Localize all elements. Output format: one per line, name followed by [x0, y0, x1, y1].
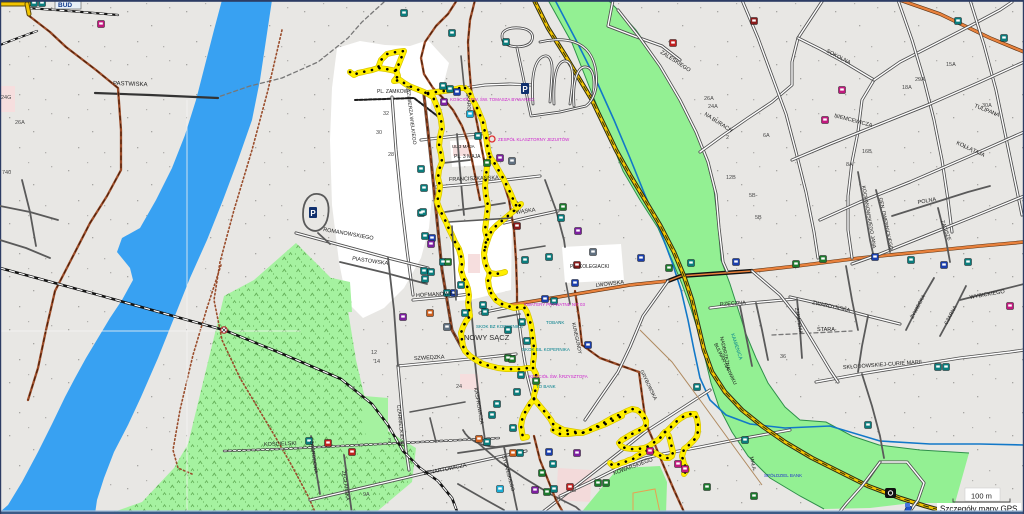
- svg-text:9A: 9A: [363, 492, 370, 498]
- svg-text:29A: 29A: [915, 77, 925, 83]
- svg-text:TO BANK: TO BANK: [536, 384, 556, 389]
- svg-text:BUD: BUD: [58, 2, 72, 9]
- svg-text:PASTWISKA: PASTWISKA: [113, 81, 148, 88]
- svg-text:KWATERY PRYWATNE NIT 03: KWATERY PRYWATNE NIT 03: [524, 302, 585, 307]
- svg-text:6A: 6A: [763, 133, 770, 139]
- svg-text:30: 30: [376, 130, 382, 136]
- svg-text:8A: 8A: [846, 162, 853, 168]
- svg-text:NOWY SĄCZ: NOWY SĄCZ: [464, 333, 510, 342]
- svg-text:3: 3: [388, 438, 391, 444]
- svg-text:36: 36: [780, 354, 786, 360]
- svg-text:SKOK BZ KOPERNIKA: SKOK BZ KOPERNIKA: [476, 324, 523, 329]
- svg-text:24: 24: [456, 384, 462, 390]
- svg-text:15A: 15A: [946, 62, 956, 68]
- svg-text:33: 33: [570, 488, 576, 494]
- svg-text:26A: 26A: [704, 96, 714, 102]
- svg-text:PL. KOLEGIACKI: PL. KOLEGIACKI: [570, 264, 609, 270]
- svg-text:2: 2: [726, 135, 729, 141]
- svg-text:P: P: [310, 209, 316, 218]
- svg-text:24G: 24G: [1, 95, 11, 101]
- svg-text:SKOK BIL KOPERNIKA: SKOK BIL KOPERNIKA: [522, 347, 570, 352]
- svg-text:STARA: STARA: [817, 327, 835, 333]
- svg-text:100 m: 100 m: [971, 492, 992, 501]
- svg-text:18A: 18A: [902, 85, 912, 91]
- svg-text:SPÓŁDZIEL BANK: SPÓŁDZIEL BANK: [764, 472, 802, 478]
- svg-text:12: 12: [371, 350, 377, 356]
- svg-text:12B: 12B: [726, 175, 736, 181]
- svg-text:28: 28: [388, 152, 394, 158]
- svg-text:UL 3 MAJA: UL 3 MAJA: [452, 144, 475, 149]
- svg-text:PL. 3 MAJA: PL. 3 MAJA: [454, 154, 481, 160]
- svg-text:5B: 5B: [755, 215, 762, 221]
- svg-text:P: P: [522, 85, 528, 94]
- svg-text:26A: 26A: [15, 120, 25, 126]
- svg-text:KOŚCIÓŁ ŚW. KRZYSZTOFA: KOŚCIÓŁ ŚW. KRZYSZTOFA: [529, 374, 588, 379]
- svg-text:5B-: 5B-: [749, 193, 758, 199]
- svg-text:16B: 16B: [862, 149, 872, 155]
- svg-text:ZESPÓŁ KLASZTORNY JEZUITÓW: ZESPÓŁ KLASZTORNY JEZUITÓW: [498, 137, 570, 142]
- svg-text:24A: 24A: [708, 104, 718, 110]
- svg-text:14: 14: [374, 359, 380, 365]
- svg-text:TOBANK: TOBANK: [546, 320, 564, 325]
- svg-text:4: 4: [352, 386, 355, 392]
- svg-text:740: 740: [2, 170, 11, 176]
- svg-text:30A: 30A: [982, 103, 992, 109]
- svg-text:KOŚCIÓŁ PW. ŚW. TOMASZA BYWANI: KOŚCIÓŁ PW. ŚW. TOMASZA BYWANIEC: [450, 97, 535, 102]
- svg-text:32: 32: [383, 111, 389, 117]
